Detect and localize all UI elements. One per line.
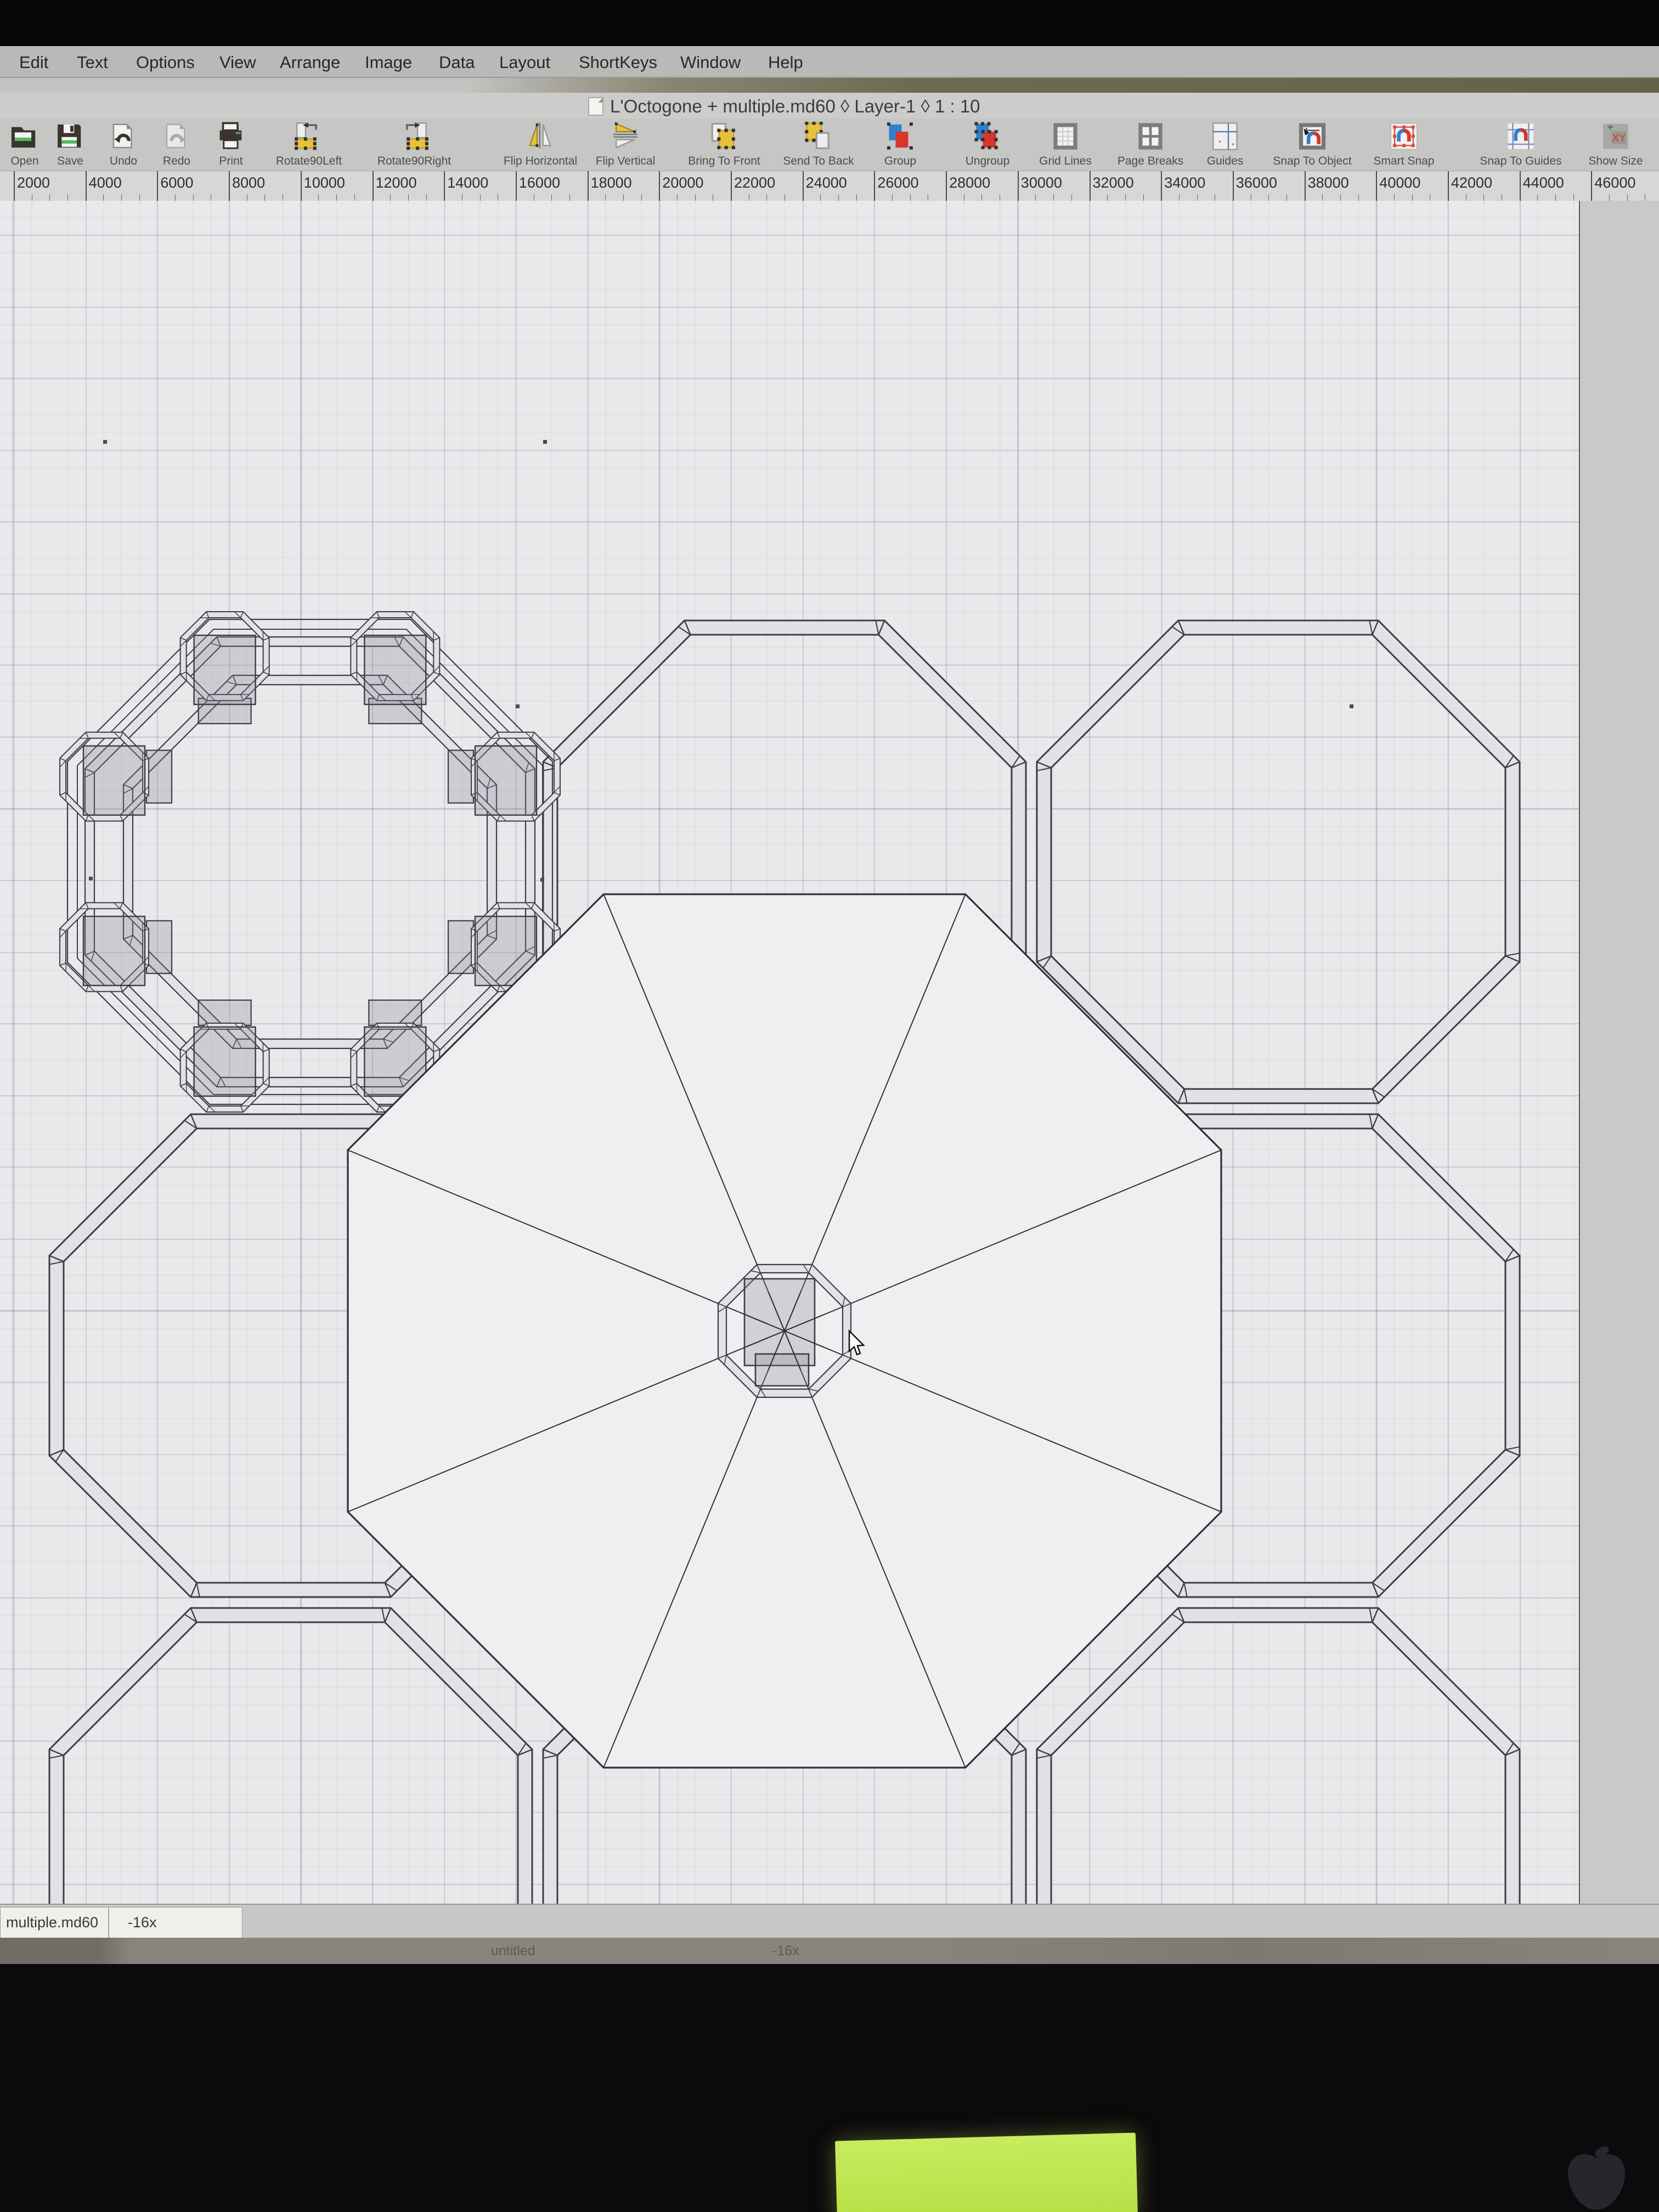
toolbar-button-bring-to-front[interactable]: Bring To Front [680, 119, 768, 171]
ruler-label: 22000 [734, 174, 775, 191]
ruler-label: 42000 [1451, 174, 1492, 191]
ruler-major-tick [373, 171, 374, 201]
menu-item-image[interactable]: Image [365, 53, 412, 72]
toolbar-button-label: Guides [1207, 155, 1244, 168]
print-icon [217, 122, 246, 154]
menu-item-layout[interactable]: Layout [499, 53, 550, 72]
ruler-label: 24000 [806, 174, 847, 191]
rotate-right-icon [400, 122, 429, 154]
toolbar-button-label: Rotate90Right [377, 155, 451, 168]
toolbar-button-label: Print [219, 155, 242, 168]
ruler-label: 6000 [160, 174, 193, 191]
drawing-canvas[interactable] [0, 201, 1579, 1904]
toolbar-button-smart-snap[interactable]: Smart Snap [1360, 119, 1448, 171]
toolbar-button-grid-lines[interactable]: Grid Lines [1022, 119, 1109, 171]
ruler-label: 38000 [1308, 174, 1349, 191]
ruler-major-tick [516, 171, 517, 201]
toolbar-button-label: Smart Snap [1374, 155, 1435, 168]
group-icon [886, 122, 915, 154]
menu-bar: EditTextOptionsViewArrangeImageDataLayou… [0, 46, 1659, 78]
toolbar-button-flip-horizontal[interactable]: Flip Horizontal [496, 119, 584, 171]
ruler-label: 46000 [1594, 174, 1635, 191]
ruler-major-tick [14, 171, 15, 201]
ruler-label: 16000 [519, 174, 560, 191]
pasteboard-margin [1579, 201, 1659, 1904]
menu-item-help[interactable]: Help [768, 53, 803, 72]
toolbar-button-label: Redo [163, 155, 190, 168]
sticky-note [835, 2132, 1138, 2212]
ruler-major-tick [444, 171, 445, 201]
ruler-major-tick [1448, 171, 1449, 201]
zoom-level-indicator: -16x [128, 1914, 157, 1931]
background-window-strip: untitled-16x [0, 1938, 1659, 1964]
toolbar-button-snap-to-guides[interactable]: Snap To Guides [1477, 119, 1565, 171]
toolbar-button-label: Bring To Front [688, 155, 760, 168]
toolbar-button-send-to-back[interactable]: Send To Back [775, 119, 862, 171]
ruler-label: 10000 [304, 174, 345, 191]
toolbar-button-label: Flip Horizontal [504, 155, 577, 168]
toolbar-button-label: Page Breaks [1118, 155, 1183, 168]
ruler-major-tick [1161, 171, 1162, 201]
apple-logo-reflection [1547, 2145, 1646, 2212]
document-tab-label: multiple.md60 [6, 1914, 98, 1931]
ruler-label: 36000 [1236, 174, 1277, 191]
ruler-label: 30000 [1021, 174, 1062, 191]
toolbar-button-show-size[interactable]: XYShow Size [1572, 119, 1659, 171]
window-title-bar[interactable]: L'Octogone + multiple.md60 ◊ Layer-1 ◊ 1… [0, 93, 1659, 119]
toolbar-button-label: Flip Vertical [596, 155, 656, 168]
page-breaks-icon [1136, 122, 1165, 154]
ruler-major-tick [874, 171, 875, 201]
ruler-label: 20000 [662, 174, 703, 191]
menu-item-options[interactable]: Options [136, 53, 195, 72]
ruler-major-tick [1520, 171, 1521, 201]
ruler-label: 4000 [89, 174, 122, 191]
menu-item-edit[interactable]: Edit [19, 53, 48, 72]
bring-to-front-icon [710, 122, 739, 154]
toolbar-button-label: Snap To Object [1273, 155, 1351, 168]
ruler-major-tick [1018, 171, 1019, 201]
send-to-back-icon [804, 122, 833, 154]
ruler-label: 32000 [1093, 174, 1134, 191]
desk-area [0, 1964, 1659, 2212]
ruler-major-tick [301, 171, 302, 201]
ruler-label: 26000 [877, 174, 918, 191]
octagon-drawing [0, 201, 1579, 1904]
background-window-text: untitled [491, 1943, 535, 1959]
ruler-major-tick [803, 171, 804, 201]
ruler-major-tick [229, 171, 230, 201]
background-window-text: -16x [772, 1943, 799, 1959]
desktop-wallpaper-strip [0, 78, 1659, 93]
menu-item-shortkeys[interactable]: ShortKeys [579, 53, 657, 72]
toolbar-button-flip-vertical[interactable]: Flip Vertical [582, 119, 669, 171]
toolbar-button-label: Send To Back [783, 155, 854, 168]
toolbar-button-print[interactable]: Print [187, 119, 275, 171]
menu-item-text[interactable]: Text [77, 53, 108, 72]
ruler-label: 18000 [591, 174, 632, 191]
window-title: L'Octogone + multiple.md60 ◊ Layer-1 ◊ 1… [610, 96, 980, 117]
screen-bezel-top [0, 0, 1659, 46]
ruler-label: 44000 [1523, 174, 1564, 191]
ruler-major-tick [1591, 171, 1592, 201]
document-icon [588, 97, 603, 116]
document-tab[interactable]: multiple.md60 -16x [0, 1907, 242, 1939]
toolbar-button-label: Rotate90Left [276, 155, 342, 168]
grid-lines-icon [1051, 122, 1080, 154]
status-bar: multiple.md60 -16x [0, 1904, 1659, 1939]
rotate-left-icon [295, 122, 324, 154]
ungroup-icon [973, 122, 1002, 154]
ruler-major-tick [157, 171, 158, 201]
guides-icon [1211, 122, 1240, 154]
ruler-label: 12000 [376, 174, 417, 191]
toolbar-button-ungroup[interactable]: Ungroup [944, 119, 1031, 171]
toolbar-button-rotate90right[interactable]: Rotate90Right [370, 119, 458, 171]
ruler-major-tick [659, 171, 660, 201]
ruler-major-tick [86, 171, 87, 201]
menu-item-arrange[interactable]: Arrange [280, 53, 340, 72]
ruler-label: 8000 [232, 174, 265, 191]
ruler-major-tick [1376, 171, 1377, 201]
toolbar-button-snap-to-object[interactable]: Snap To Object [1268, 119, 1356, 171]
svg-text:XY: XY [1612, 133, 1626, 144]
screen-photo: EditTextOptionsViewArrangeImageDataLayou… [0, 0, 1659, 2212]
toolbar-button-rotate90left[interactable]: Rotate90Left [265, 119, 353, 171]
toolbar-button-label: Ungroup [966, 155, 1010, 168]
horizontal-ruler: 2000400060008000100001200014000160001800… [0, 171, 1659, 202]
ruler-major-tick [946, 171, 947, 201]
toolbar: OpenSaveUndoRedoPrintRotate90LeftRotate9… [0, 119, 1659, 171]
toolbar-button-label: Show Size [1588, 155, 1643, 168]
toolbar-button-label: Group [884, 155, 916, 168]
toolbar-button-label: Grid Lines [1039, 155, 1092, 168]
toolbar-button-group[interactable]: Group [856, 119, 944, 171]
toolbar-button-guides[interactable]: Guides [1181, 119, 1269, 171]
menu-item-window[interactable]: Window [680, 53, 741, 72]
snap-to-object-icon [1298, 122, 1327, 154]
menu-item-view[interactable]: View [219, 53, 256, 72]
smart-snap-icon [1390, 122, 1419, 154]
ruler-major-tick [731, 171, 732, 201]
tab-divider [108, 1908, 109, 1938]
toolbar-button-label: Snap To Guides [1480, 155, 1561, 168]
flip-horizontal-icon [526, 122, 555, 154]
ruler-label: 14000 [447, 174, 488, 191]
show-size-icon: XY [1601, 122, 1630, 154]
ruler-major-tick [1305, 171, 1306, 201]
ruler-label: 34000 [1164, 174, 1205, 191]
ruler-major-tick [588, 171, 589, 201]
ruler-label: 40000 [1379, 174, 1420, 191]
menu-item-data[interactable]: Data [439, 53, 475, 72]
ruler-label: 2000 [17, 174, 50, 191]
ruler-major-tick [1233, 171, 1234, 201]
ruler-major-tick [1090, 171, 1091, 201]
flip-vertical-icon [611, 122, 640, 154]
ruler-label: 28000 [949, 174, 990, 191]
snap-to-guides-icon [1506, 122, 1536, 154]
